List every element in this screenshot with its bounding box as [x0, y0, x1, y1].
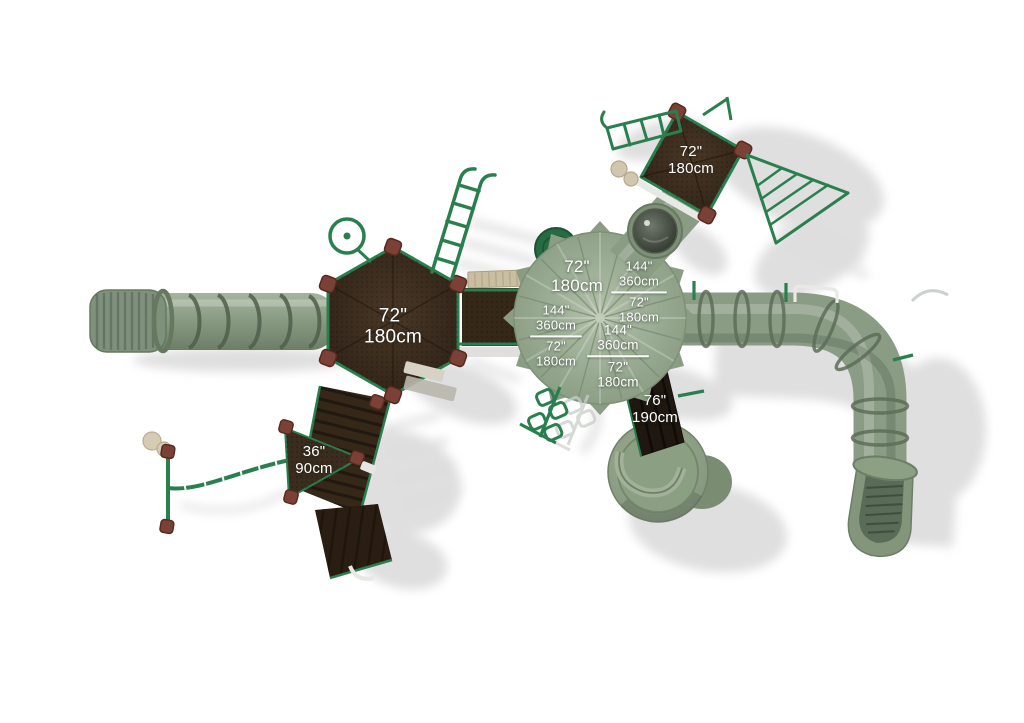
balance-rope	[143, 432, 290, 534]
dim-inches: 144"	[625, 259, 652, 274]
playground-top-view-render: 72" 180cm 72" 180cm 144" 360cm 72" 180cm…	[0, 0, 1024, 723]
dim-inches: 36"	[303, 444, 326, 461]
dim-cm: 90cm	[295, 461, 332, 478]
post-cap	[278, 419, 294, 435]
dim-inches: 72"	[546, 340, 566, 355]
dim-inches: 72"	[680, 144, 703, 161]
dim-inches: 144"	[604, 322, 632, 337]
dim-label-roof-pair-left: 144" 360cm 72" 180cm	[530, 303, 582, 368]
dimension-line	[530, 335, 582, 337]
dim-inches: 72"	[608, 360, 628, 375]
dim-inches: 144"	[542, 303, 569, 318]
tunnel-end-cap	[90, 290, 172, 352]
post-cap	[160, 444, 175, 459]
playground-structure-art	[0, 0, 1024, 723]
dimension-line	[587, 355, 649, 357]
dim-label-roof-pair-right: 144" 360cm 72" 180cm	[611, 259, 667, 324]
dim-cm: 190cm	[632, 410, 678, 427]
dim-cm: 180cm	[364, 327, 422, 348]
dim-label-slide-ramp: 76" 190cm	[632, 393, 678, 427]
dim-label-square-deck: 72" 180cm	[668, 144, 714, 178]
post-cap	[159, 519, 174, 534]
dimension-line	[611, 291, 667, 293]
dim-cm: 360cm	[536, 318, 576, 333]
steering-wheel	[330, 219, 371, 262]
dim-cm: 180cm	[551, 276, 603, 295]
dim-cm: 360cm	[619, 274, 659, 289]
dim-label-ramp: 36" 90cm	[295, 444, 332, 478]
post-cap	[283, 489, 299, 505]
ball-ornament	[611, 161, 627, 177]
dim-inches: 72"	[379, 306, 407, 327]
dim-cm: 360cm	[597, 337, 639, 352]
dim-inches: 72"	[564, 257, 590, 276]
crawl-tunnel	[90, 290, 337, 352]
ball-ornament	[624, 172, 638, 186]
dim-cm: 180cm	[597, 375, 639, 390]
bubble-dome	[628, 204, 682, 258]
dim-cm: 180cm	[536, 354, 576, 369]
dim-inches: 72"	[629, 296, 649, 311]
dim-label-roof-main: 72" 180cm	[551, 257, 603, 295]
dim-label-hex-deck: 72" 180cm	[364, 306, 422, 349]
flag-post	[703, 97, 731, 120]
dim-label-roof-pair-center: 144" 360cm 72" 180cm	[587, 322, 649, 389]
dim-inches: 76"	[644, 393, 667, 410]
dim-cm: 180cm	[668, 161, 714, 178]
